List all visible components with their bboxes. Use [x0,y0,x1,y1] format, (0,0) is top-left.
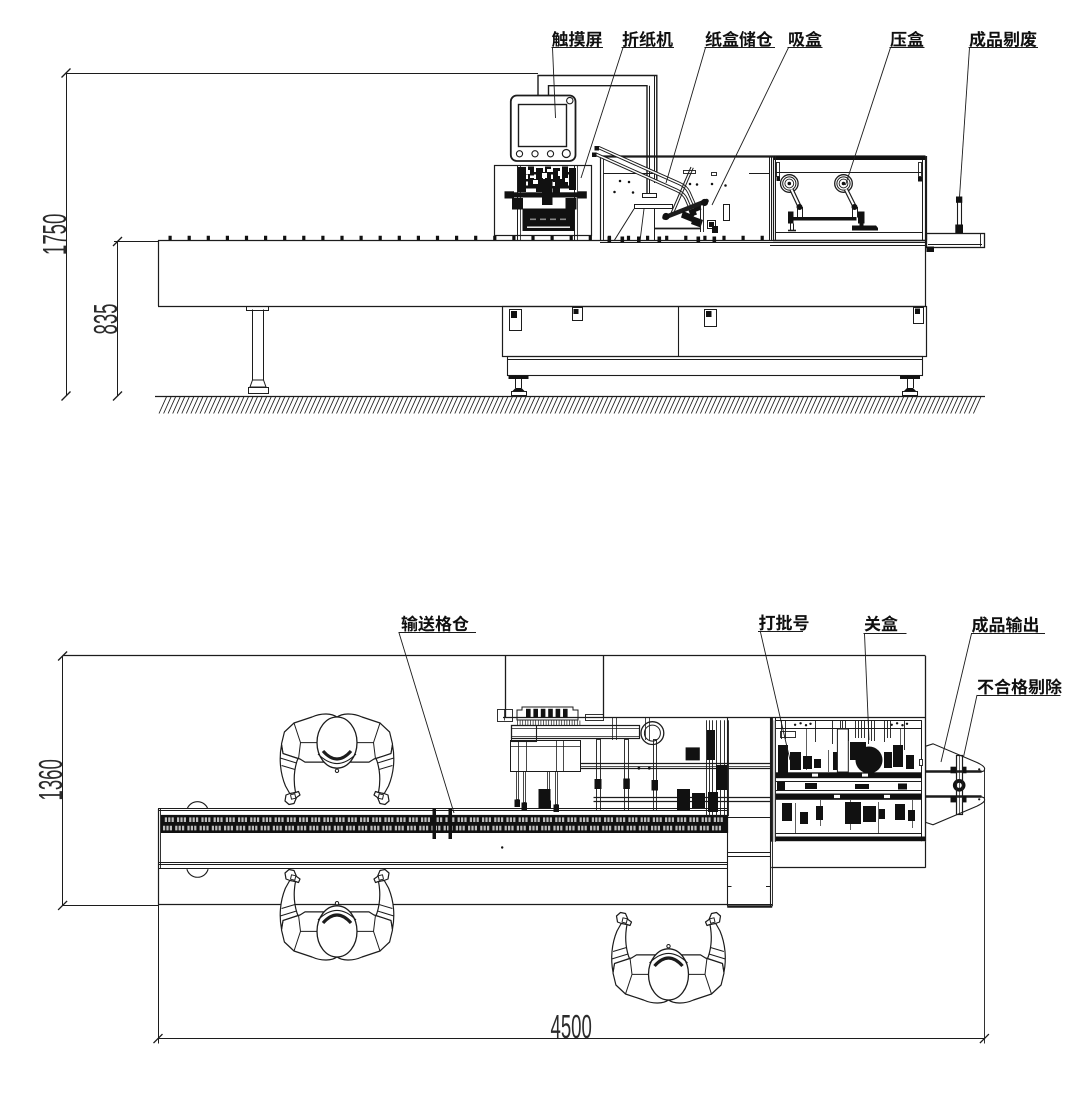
svg-text:4500: 4500 [551,1009,592,1046]
svg-text:835: 835 [87,303,124,334]
svg-text:1360: 1360 [32,759,69,800]
svg-text:1750: 1750 [36,214,73,255]
